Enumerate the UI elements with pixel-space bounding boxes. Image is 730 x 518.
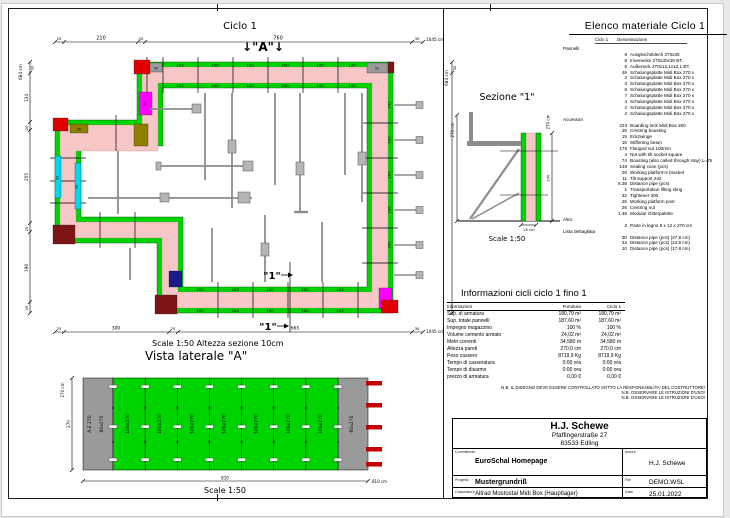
vista-title: Vista laterale "A" <box>145 349 247 363</box>
svg-text:60x270: 60x270 <box>99 415 105 432</box>
svg-text:50: 50 <box>143 102 147 106</box>
info-ciclo-value: 8719,9 Kg <box>581 353 621 360</box>
plan-title: Ciclo 1 <box>223 21 257 32</box>
info-fornitura-value: 270,0 cm <box>535 346 581 353</box>
svg-text:100: 100 <box>266 287 274 292</box>
nb-notes: N.B. IL DISEGNO DEVE ESSERE CONTROLLATO … <box>385 385 705 400</box>
info-label: Altezza pareti <box>447 346 535 353</box>
dim-label: 1045 cm <box>426 37 444 42</box>
title-block-row2: Committente EuroSchal Homepage Autore H.… <box>453 449 706 476</box>
section-1-marker: "1" <box>263 271 280 282</box>
dim-label: 810 cm <box>372 479 387 484</box>
dim-label: 270 <box>66 420 71 428</box>
cycle-info-table: Informazioni Fornitura Ciclo 1 Sup. di a… <box>447 302 625 381</box>
material-list-title: Elenco materiale Ciclo 1 <box>563 20 727 32</box>
vista-scale: Scale 1:50 <box>204 486 246 495</box>
dim-label: 810 <box>221 476 229 481</box>
svg-text:100: 100 <box>246 83 254 88</box>
info-label: Volume cemento armato <box>447 332 535 339</box>
nb-line: N.B. OSSERVARE LE ISTRUZIONI D'USO! <box>385 395 705 400</box>
section-arrowhead <box>284 324 289 329</box>
info-fornitura-value: 0:00 ora <box>535 360 581 367</box>
cycle-info-header: Informazioni Fornitura Ciclo 1 <box>447 302 625 311</box>
svg-text:100: 100 <box>336 308 344 313</box>
progetto-value: Mustergrundriß <box>475 479 527 486</box>
info-ciclo-value: 180,79 m² <box>581 311 621 318</box>
svg-text:60x270: 60x270 <box>349 415 355 432</box>
company-address2: 83533 Edling <box>453 440 706 448</box>
dim-label: 684 cm <box>18 64 23 80</box>
svg-text:100: 100 <box>316 63 324 68</box>
support-fittings <box>156 104 366 256</box>
material-list-header: Ciclo 1 Denominazione <box>595 37 687 44</box>
edge-clamps <box>366 381 382 467</box>
dim-label: 270 cm <box>60 382 65 397</box>
info-label: Peso cassero <box>447 353 535 360</box>
dim-label: 30 <box>415 326 420 331</box>
col-informazioni: Informazioni <box>447 303 535 310</box>
info-ciclo-value: 34,580 m <box>581 339 621 346</box>
drawing-sheet-page: { "plan": { "title": "Ciclo 1", "marker_… <box>0 0 730 518</box>
casseratura-value: Altrad Mostostal Midi Box (Hauptlager) <box>475 491 578 497</box>
svg-text:55: 55 <box>75 185 79 189</box>
company-name: H.J. Schewe <box>453 421 706 432</box>
data-label: Data <box>625 490 633 494</box>
casseratura-label: Casseratura <box>455 490 475 494</box>
dim-label: 25 cm <box>523 228 535 232</box>
dim-label: 270 cm <box>450 122 455 137</box>
formwork-panel <box>521 133 526 221</box>
svg-text:100x270: 100x270 <box>157 414 163 434</box>
cycle-info-title: Informazioni cicli ciclo 1 fino 1 <box>461 288 625 299</box>
info-row: Metri correnti 34,580 m 34,580 m <box>447 339 625 346</box>
section-1-marker: "1" <box>259 322 276 333</box>
svg-text:100: 100 <box>281 83 289 88</box>
concrete-wall-ring <box>60 67 388 308</box>
dim-label: 684 cm <box>444 70 449 86</box>
col-denominazione: Denominazione <box>617 37 647 42</box>
info-fornitura-value: 0:00 ora <box>535 367 581 374</box>
svg-text:50: 50 <box>77 128 81 132</box>
svg-text:100x270: 100x270 <box>254 414 260 434</box>
info-label: Tempo di casseratura <box>447 360 535 367</box>
title-rule <box>569 34 727 35</box>
svg-text:100: 100 <box>316 83 324 88</box>
info-label: Impegno magazzino <box>447 325 535 332</box>
data-cell: Data 25.01.2022 <box>623 488 706 499</box>
svg-text:100: 100 <box>266 308 274 313</box>
svg-text:100: 100 <box>336 287 344 292</box>
dim-label: 30 <box>452 65 457 70</box>
plan-view: Ciclo 1 ↓"A"↓ 25 210 20 760 30 1045 cm 2… <box>18 21 457 348</box>
progetto-cell: Progetto Mustergrundriß <box>453 476 623 487</box>
info-fornitura-value: 34,580 m <box>535 339 581 346</box>
info-row: Tempo di disarmo 0:00 ora 0:00 ora <box>447 367 625 374</box>
col-ciclo1: Ciclo 1 <box>581 303 621 310</box>
svg-text:100: 100 <box>387 206 392 214</box>
info-ciclo-value: 0,00 € <box>581 374 621 381</box>
material-qty: 10 <box>613 246 627 252</box>
info-row: Impegno magazzino 100 % 100 % <box>447 325 625 332</box>
progetto-label: Progetto <box>455 478 469 482</box>
vista-laterale-view: Vista laterale "A" A.E 270 60x270 100x27… <box>60 349 387 495</box>
svg-text:100: 100 <box>211 63 219 68</box>
company-address1: Pfaffingerstraße 27 <box>453 432 706 440</box>
guardrail-post <box>469 112 473 146</box>
dim-label: 210 <box>96 36 106 42</box>
info-label: prezzo di armatura <box>447 374 535 381</box>
info-label: Sup. totale pannelli <box>447 318 535 325</box>
dim-label: 30 <box>415 36 420 41</box>
svg-text:100x270: 100x270 <box>222 414 228 434</box>
title-block: H.J. Schewe Pfaffingerstraße 27 83533 Ed… <box>452 418 707 498</box>
bracket-plates <box>416 102 423 279</box>
title-block-row3: Progetto Mustergrundriß File DEMO.WSL <box>453 476 706 488</box>
svg-text:55: 55 <box>56 176 60 180</box>
svg-text:100: 100 <box>301 308 309 313</box>
autore-cell: Autore H.J. Schewe <box>623 449 706 475</box>
dim-chain-bottom <box>53 330 425 334</box>
title-block-company-row: H.J. Schewe Pfaffingerstraße 27 83533 Ed… <box>453 419 706 449</box>
info-ciclo-value: 24,02 m³ <box>581 332 621 339</box>
svg-text:100x270: 100x270 <box>189 414 195 434</box>
dim-label: 25 <box>57 36 62 41</box>
dim-label: 665 <box>291 326 300 332</box>
autore-label: Autore <box>625 450 636 454</box>
dim-label: 1045 cm <box>426 329 444 334</box>
dim-label: 30 <box>30 65 35 70</box>
svg-text:100: 100 <box>196 287 204 292</box>
info-row: Sup. di armatura 180,79 m² 180,79 m² <box>447 311 625 318</box>
dim-label: 134 <box>24 94 29 102</box>
svg-text:100: 100 <box>348 83 356 88</box>
info-row: Sup. totale pannelli 187,60 m² 187,60 m² <box>447 318 625 325</box>
formwork-panel <box>536 133 541 221</box>
info-ciclo-value: 187,60 m² <box>581 318 621 325</box>
material-name: Schalungsplatte Midi Box 270 x <box>630 111 694 117</box>
svg-text:100: 100 <box>281 63 289 68</box>
dim-label: 25 <box>24 305 29 310</box>
title-block-row4: Casseratura Altrad Mostostal Midi Box (H… <box>453 488 706 499</box>
dim-label: 760 <box>273 36 283 42</box>
info-row: prezzo di armatura 0,00 € 0,00 € <box>447 374 625 381</box>
dim-label: 25 <box>57 326 62 331</box>
info-fornitura-value: 24,02 m³ <box>535 332 581 339</box>
col-fornitura: Fornitura <box>535 303 581 310</box>
material-name: Distance pipe (pcs) (17.8 cm) <box>630 246 690 252</box>
svg-text:100: 100 <box>231 287 239 292</box>
info-ciclo-value: 0:00 ora <box>581 360 621 367</box>
casseratura-cell: Casseratura Altrad Mostostal Midi Box (H… <box>453 488 623 499</box>
info-fornitura-value: 187,60 m² <box>535 318 581 325</box>
info-label: Tempo di disarmo <box>447 367 535 374</box>
info-row: Altezza pareti 270,0 cm 270,0 cm <box>447 346 625 353</box>
svg-text:100: 100 <box>176 83 184 88</box>
info-ciclo-value: 0:00 ora <box>581 367 621 374</box>
svg-text:100: 100 <box>211 83 219 88</box>
col-ciclo: Ciclo 1 <box>595 37 608 42</box>
tilt-support <box>470 149 519 219</box>
info-row: Peso cassero 8719,9 Kg 8719,9 Kg <box>447 353 625 360</box>
formwork-panels-ring <box>55 62 393 313</box>
info-fornitura-value: 180,79 m² <box>535 311 581 318</box>
committente-cell: Committente EuroSchal Homepage <box>453 449 623 475</box>
svg-text:100: 100 <box>176 63 184 68</box>
info-label: Metri correnti <box>447 339 535 346</box>
dim-label: 190 <box>24 264 29 272</box>
info-fornitura-value: 0,00 € <box>535 374 581 381</box>
sezione-scale: Scale 1:50 <box>489 235 526 243</box>
dim-label: 25 <box>171 326 176 331</box>
committente-label: Committente <box>455 450 475 454</box>
dim-label: 300 <box>112 326 121 332</box>
dim-label: 25 <box>24 226 29 231</box>
panel-size-labels: 100100 100100 100100 100100 100100 10010… <box>56 63 392 314</box>
svg-text:100: 100 <box>387 101 392 109</box>
dim-label: 270 <box>547 174 551 182</box>
info-row: Volume cemento armato 24,02 m³ 24,02 m³ <box>447 332 625 339</box>
svg-text:100x270: 100x270 <box>286 414 292 434</box>
info-fornitura-value: 8719,9 Kg <box>535 353 581 360</box>
dim-label: 20 <box>139 36 144 41</box>
material-rows: Pannelli 8 Ausgleichsblech 270x35 8 Inne… <box>563 46 727 252</box>
concrete-wall <box>526 133 536 221</box>
svg-text:100: 100 <box>348 63 356 68</box>
dim-label: 20 <box>24 125 29 130</box>
svg-text:100x270: 100x270 <box>125 414 131 434</box>
material-row: 10 Distance pipe (pcs) (17.8 cm) <box>563 246 727 252</box>
material-group-label <box>563 246 613 252</box>
working-platform <box>467 141 521 146</box>
cycle-info-block: Informazioni cicli ciclo 1 fino 1 Inform… <box>447 288 625 381</box>
dim-chain-right <box>450 60 454 315</box>
info-row: Tempo di casseratura 0:00 ora 0:00 ora <box>447 360 625 367</box>
svg-text:100: 100 <box>196 308 204 313</box>
svg-text:100: 100 <box>387 136 392 144</box>
plan-scale-note: Scale 1:50 Altezza sezione 10cm <box>152 339 284 348</box>
svg-text:100: 100 <box>301 287 309 292</box>
info-label: Sup. di armatura <box>447 311 535 318</box>
sezione-view: Sezione "1" 270 cm 270 cm 270 25 cm Scal… <box>450 92 560 243</box>
section-arrowhead <box>288 273 293 278</box>
svg-text:A.E 270: A.E 270 <box>87 415 93 432</box>
autore-value: H.J. Schewe <box>649 460 686 467</box>
info-ciclo-value: 100 % <box>581 325 621 332</box>
material-list: Elenco materiale Ciclo 1 Ciclo 1 Denomin… <box>563 20 727 252</box>
file-label: File <box>625 478 631 482</box>
material-name: Modular Gitterpalette <box>630 211 673 217</box>
dim-label: 270 cm <box>546 114 551 129</box>
info-fornitura-value: 100 % <box>535 325 581 332</box>
svg-text:50: 50 <box>375 67 379 71</box>
dim-label: 255 <box>24 173 29 181</box>
svg-text:100: 100 <box>246 63 254 68</box>
dim-chain-top <box>53 40 425 44</box>
svg-text:100: 100 <box>387 171 392 179</box>
material-name: Parte in legno 9 x 12 x 270 cm <box>630 223 692 229</box>
corner-panels <box>53 60 398 314</box>
data-value: 25.01.2022 <box>649 491 682 498</box>
svg-text:100: 100 <box>387 241 392 249</box>
svg-text:50: 50 <box>154 67 158 71</box>
sezione-title: Sezione "1" <box>480 92 535 103</box>
file-cell: File DEMO.WSL <box>623 476 706 487</box>
committente-value: EuroSchal Homepage <box>475 458 547 465</box>
svg-text:100: 100 <box>231 308 239 313</box>
cycle-info-rows: Sup. di armatura 180,79 m² 180,79 m² Sup… <box>447 311 625 381</box>
info-ciclo-value: 270,0 cm <box>581 346 621 353</box>
file-value: DEMO.WSL <box>649 479 684 486</box>
svg-text:100x270: 100x270 <box>318 414 324 434</box>
platform-brackets <box>394 105 418 275</box>
